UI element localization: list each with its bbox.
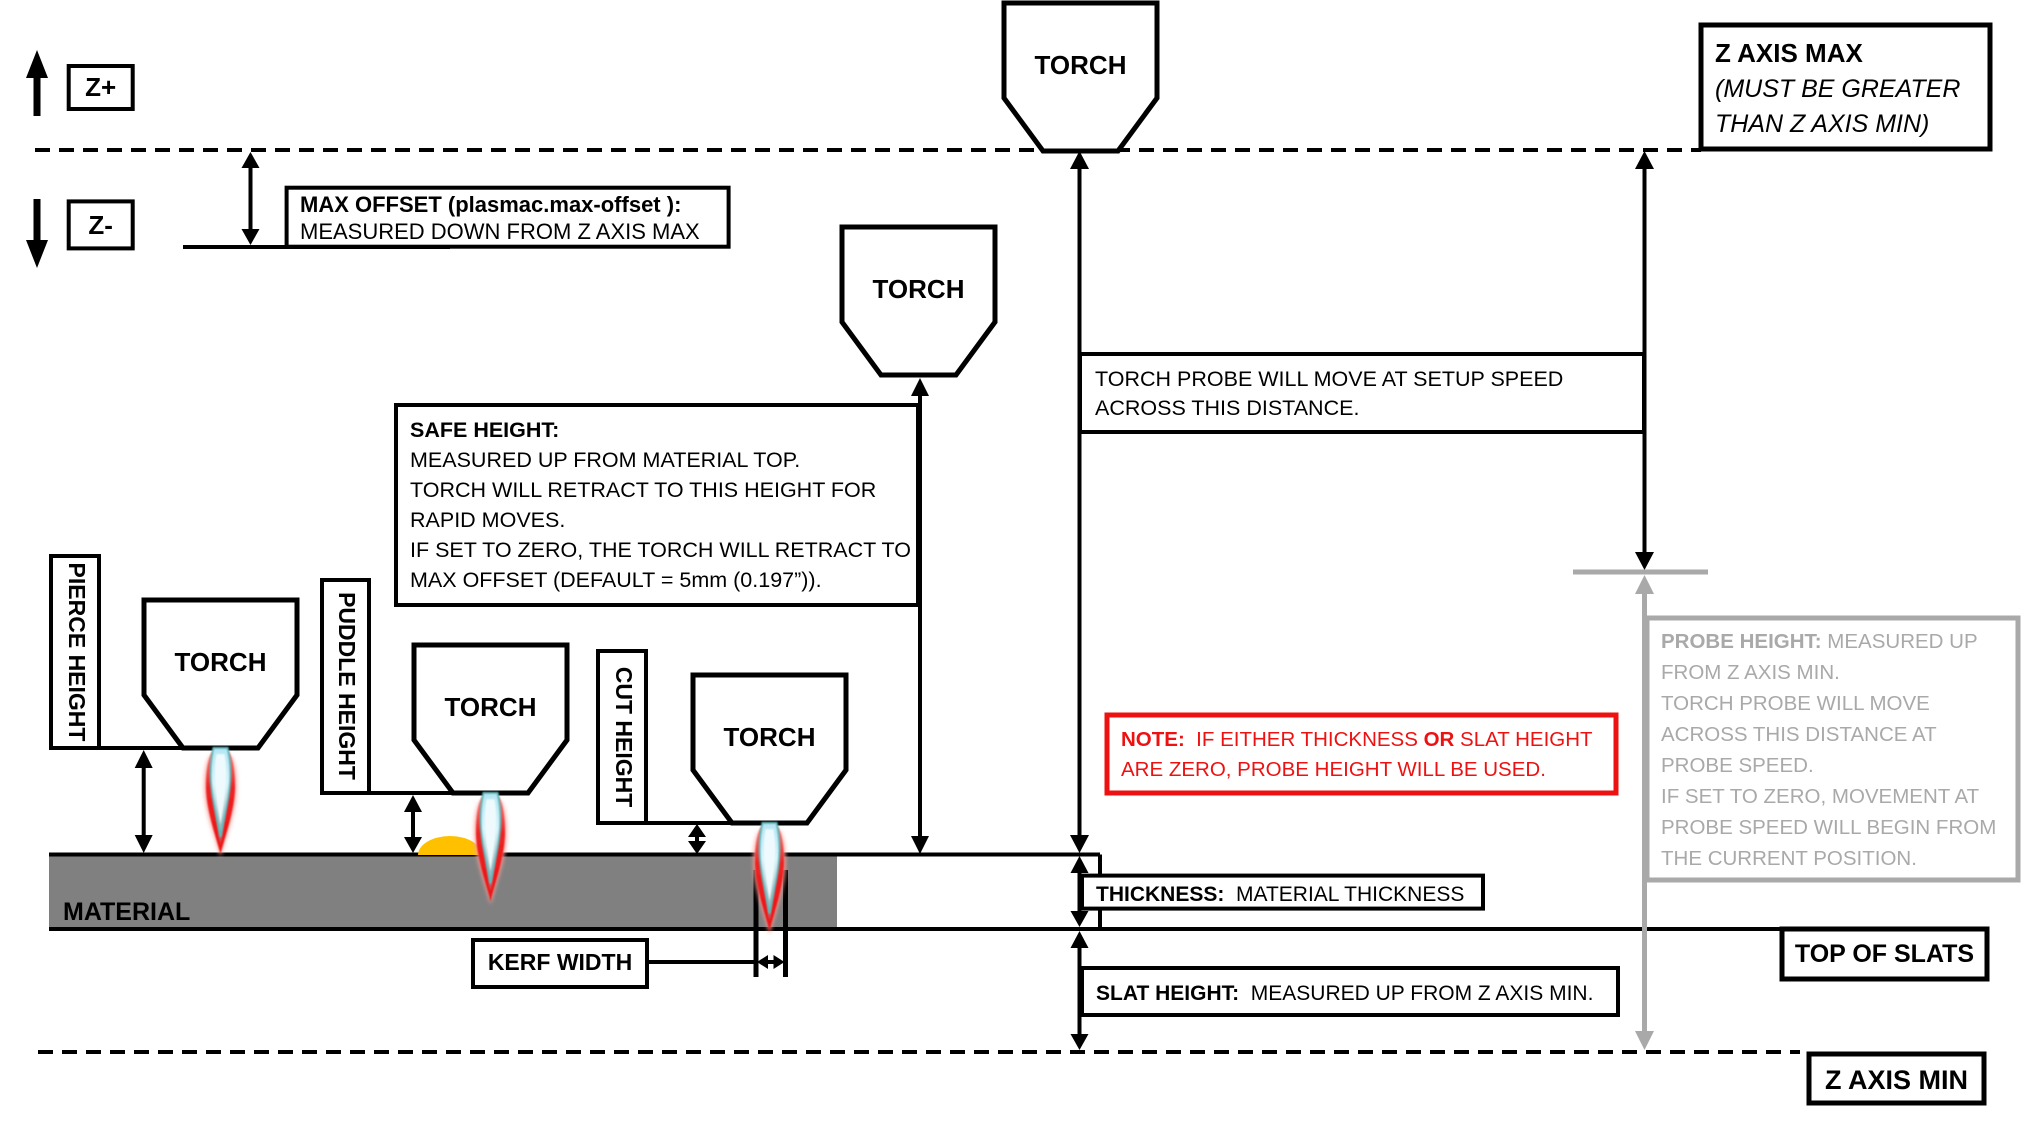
svg-text:SLAT HEIGHT: MEASURED UP FROM: SLAT HEIGHT: MEASURED UP FROM Z AXIS MIN…	[1096, 982, 1593, 1005]
svg-text:IF SET TO ZERO, MOVEMENT AT: IF SET TO ZERO, MOVEMENT AT	[1661, 785, 1980, 808]
svg-text:PROBE SPEED.: PROBE SPEED.	[1661, 754, 1814, 777]
svg-text:(MUST BE GREATER: (MUST BE GREATER	[1715, 75, 1960, 103]
svg-text:MATERIAL: MATERIAL	[63, 898, 190, 926]
svg-text:PIERCE HEIGHT: PIERCE HEIGHT	[64, 563, 90, 742]
svg-text:TORCH: TORCH	[175, 647, 267, 677]
svg-text:TORCH WILL RETRACT TO THIS HEI: TORCH WILL RETRACT TO THIS HEIGHT FOR	[410, 478, 876, 502]
svg-text:ACROSS THIS DISTANCE AT: ACROSS THIS DISTANCE AT	[1661, 723, 1937, 746]
svg-text:TORCH: TORCH	[724, 722, 816, 752]
svg-text:KERF WIDTH: KERF WIDTH	[488, 949, 632, 975]
svg-text:MAX OFFSET (plasmac.max-offset: MAX OFFSET (plasmac.max-offset ):	[300, 192, 681, 217]
svg-text:Z+: Z+	[85, 72, 116, 102]
svg-text:THE CURRENT POSITION.: THE CURRENT POSITION.	[1661, 847, 1917, 870]
svg-text:FROM Z AXIS MIN.: FROM Z AXIS MIN.	[1661, 661, 1840, 684]
svg-text:PROBE HEIGHT: MEASURED UP: PROBE HEIGHT: MEASURED UP	[1661, 630, 1978, 653]
svg-text:ARE ZERO, PROBE HEIGHT WILL BE: ARE ZERO, PROBE HEIGHT WILL BE USED.	[1121, 758, 1546, 781]
svg-text:THICKNESS: MATERIAL THICKNESS: THICKNESS: MATERIAL THICKNESS	[1096, 883, 1464, 906]
svg-text:ACROSS THIS DISTANCE.: ACROSS THIS DISTANCE.	[1095, 396, 1359, 420]
svg-text:Z AXIS MIN: Z AXIS MIN	[1825, 1065, 1968, 1095]
svg-text:MAX OFFSET (DEFAULT = 5mm (0.1: MAX OFFSET (DEFAULT = 5mm (0.197”)).	[410, 568, 822, 592]
svg-text:SAFE HEIGHT:: SAFE HEIGHT:	[410, 418, 559, 442]
svg-text:TORCH: TORCH	[1035, 50, 1127, 80]
svg-text:RAPID MOVES.: RAPID MOVES.	[410, 508, 565, 532]
svg-text:TORCH PROBE WILL MOVE: TORCH PROBE WILL MOVE	[1661, 692, 1930, 715]
svg-text:PUDDLE HEIGHT: PUDDLE HEIGHT	[334, 592, 360, 780]
svg-text:NOTE: IF EITHER THICKNESS OR: NOTE: IF EITHER THICKNESS OR SLAT HEIGHT	[1121, 728, 1593, 751]
svg-text:Z-: Z-	[88, 210, 113, 240]
svg-text:TORCH: TORCH	[873, 274, 965, 304]
svg-text:MEASURED DOWN FROM Z AXIS MAX: MEASURED DOWN FROM Z AXIS MAX	[300, 219, 700, 244]
svg-text:TORCH PROBE WILL MOVE AT SETUP: TORCH PROBE WILL MOVE AT SETUP SPEED	[1095, 367, 1563, 391]
svg-text:IF SET TO ZERO, THE TORCH WILL: IF SET TO ZERO, THE TORCH WILL RETRACT T…	[410, 538, 911, 562]
svg-text:Z AXIS MAX: Z AXIS MAX	[1715, 38, 1863, 68]
svg-text:PROBE SPEED WILL BEGIN FROM: PROBE SPEED WILL BEGIN FROM	[1661, 816, 1996, 839]
svg-text:THAN Z AXIS MIN): THAN Z AXIS MIN)	[1715, 110, 1929, 138]
svg-text:TORCH: TORCH	[445, 692, 537, 722]
svg-text:MEASURED UP FROM MATERIAL TOP.: MEASURED UP FROM MATERIAL TOP.	[410, 448, 800, 472]
svg-text:TOP OF SLATS: TOP OF SLATS	[1795, 940, 1974, 968]
svg-text:CUT HEIGHT: CUT HEIGHT	[611, 667, 637, 808]
